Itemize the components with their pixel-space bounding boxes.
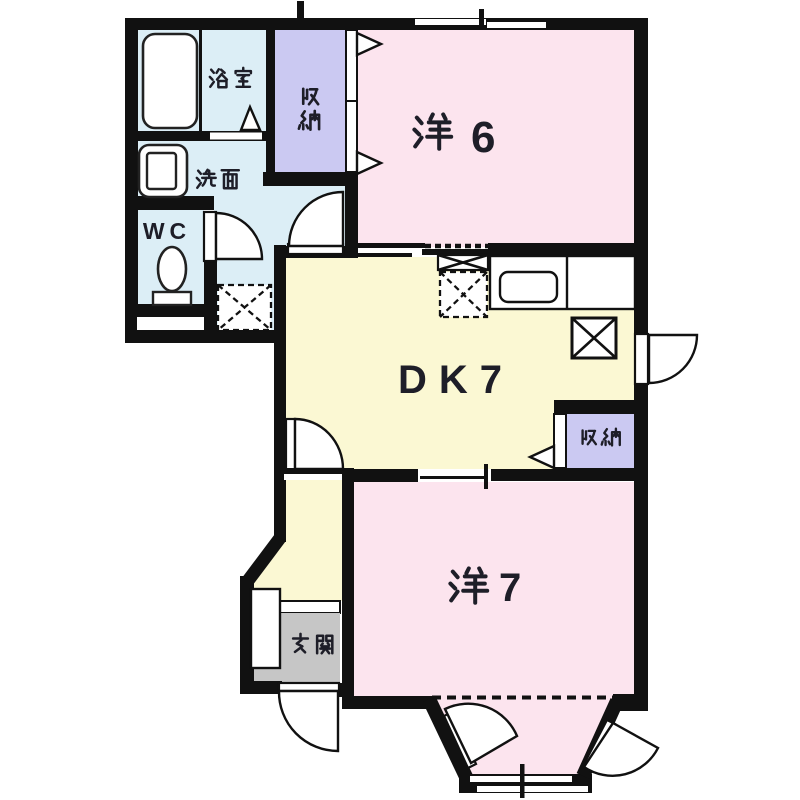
svg-text:DK7: DK7 [398, 358, 514, 402]
svg-text:WC: WC [143, 218, 191, 244]
svg-text:6: 6 [471, 113, 495, 162]
svg-text:7: 7 [499, 566, 521, 610]
